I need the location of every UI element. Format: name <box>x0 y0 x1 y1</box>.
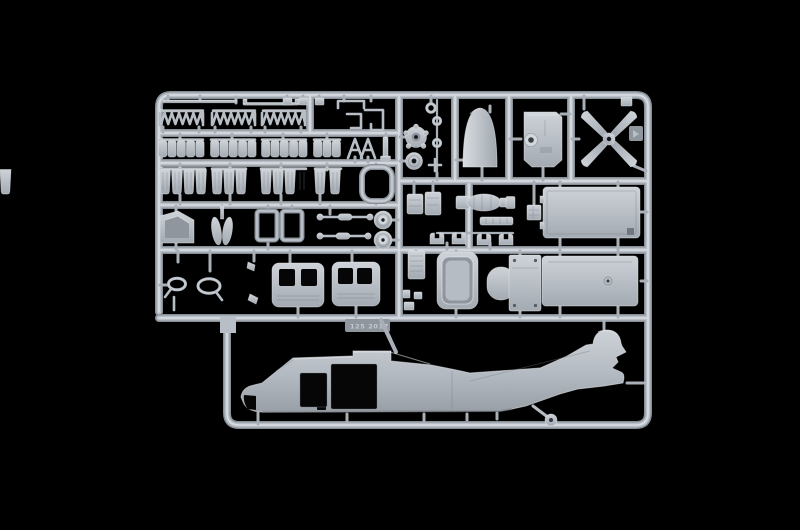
part-number-tab <box>629 126 643 141</box>
tail-wheel <box>545 414 557 426</box>
equipment-rack <box>527 205 541 220</box>
runner-junction-tab <box>220 317 236 333</box>
pulley-disc <box>406 153 423 170</box>
runner-bracket <box>621 97 632 106</box>
cabin-floor-panel <box>542 256 638 306</box>
photo-stage: 125 2017 <box>0 0 800 530</box>
seat-cushion-strips <box>158 139 341 157</box>
cockpit-window-opening <box>300 373 327 407</box>
cockpit-bulkhead <box>524 112 562 167</box>
cabin-door-rear <box>332 262 380 306</box>
sprue-photo: 125 2017 <box>0 0 800 530</box>
cabin-roof-panel <box>540 187 640 238</box>
cabin-door-opening <box>331 364 377 409</box>
cabin-door-front <box>272 263 324 307</box>
runner-clips <box>283 98 324 105</box>
window-door-panel <box>437 252 478 309</box>
